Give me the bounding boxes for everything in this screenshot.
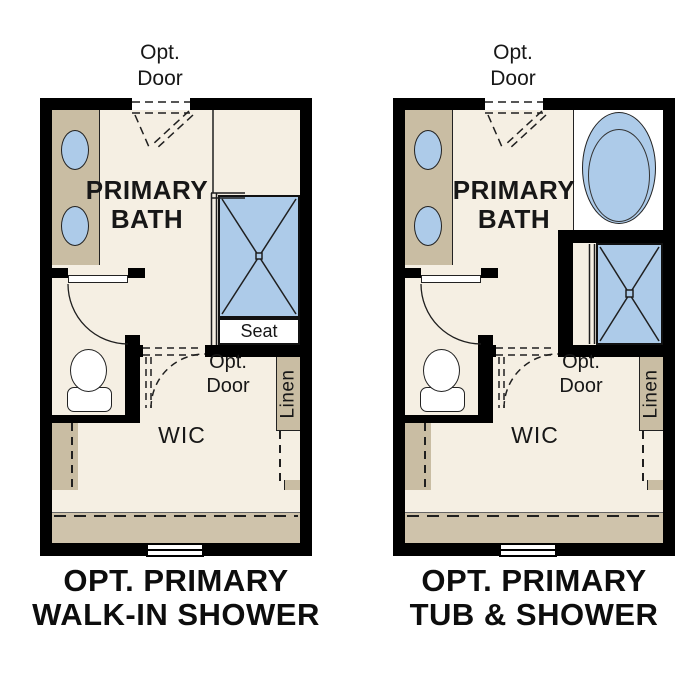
plan-tub-shower-option: Linen bbox=[393, 98, 675, 556]
window bbox=[499, 543, 557, 557]
closet-shelf bbox=[284, 480, 300, 490]
toilet-room-wall bbox=[40, 415, 140, 423]
wall bbox=[190, 98, 312, 110]
shower-pan bbox=[596, 243, 663, 345]
bathtub-basin bbox=[588, 129, 650, 222]
window bbox=[146, 543, 204, 557]
walk-in-shower-pan bbox=[218, 195, 300, 318]
shower-side-wall bbox=[558, 230, 573, 357]
wall bbox=[393, 98, 485, 110]
wall bbox=[40, 98, 52, 556]
room-label: PRIMARY BATH bbox=[72, 176, 222, 234]
wall bbox=[663, 98, 675, 556]
plan-caption: OPT. PRIMARY WALK-IN SHOWER bbox=[6, 564, 346, 632]
wall bbox=[393, 98, 405, 556]
toilet-bowl bbox=[70, 349, 107, 392]
toilet-room-wall bbox=[393, 415, 493, 423]
linen-closet: Linen bbox=[276, 357, 300, 431]
linen-closet: Linen bbox=[639, 357, 663, 431]
plan-caption: OPT. PRIMARY TUB & SHOWER bbox=[364, 564, 687, 632]
window-pane-line bbox=[148, 549, 202, 551]
sink-basin bbox=[61, 130, 89, 170]
toilet-bowl bbox=[423, 349, 460, 392]
sink-basin bbox=[414, 206, 442, 246]
sink-basin bbox=[414, 130, 442, 170]
closet-shelf bbox=[52, 423, 78, 490]
plan-walk-in-shower-option: Seat Linen bbox=[40, 98, 312, 556]
closet-rod bbox=[71, 423, 73, 490]
top-door-label: Opt. Door bbox=[463, 40, 563, 92]
floorplan-diagram: Seat Linen bbox=[0, 0, 687, 687]
linen-label: Linen bbox=[278, 369, 300, 418]
closet-shelf bbox=[647, 480, 663, 490]
seat-label: Seat bbox=[240, 321, 277, 342]
wic-wall bbox=[125, 345, 143, 357]
closet-rod bbox=[642, 431, 644, 487]
wic-door-label: Opt. Door bbox=[543, 350, 619, 398]
top-door-label: Opt. Door bbox=[110, 40, 210, 92]
toilet-room-wall bbox=[481, 268, 498, 278]
shower-seat: Seat bbox=[218, 318, 300, 345]
toilet-room-wall bbox=[128, 268, 145, 278]
wall bbox=[300, 98, 312, 556]
wall bbox=[543, 98, 675, 110]
toilet-room-wall bbox=[52, 268, 68, 278]
wic-label: WIC bbox=[493, 422, 577, 449]
wic-door-label: Opt. Door bbox=[190, 350, 266, 398]
closet-rod bbox=[424, 423, 426, 490]
closet-shelf bbox=[405, 423, 431, 490]
soffit-dashed-line bbox=[407, 515, 661, 517]
room-label: PRIMARY BATH bbox=[439, 176, 589, 234]
toilet-room-door-leaf bbox=[68, 275, 128, 283]
wall bbox=[40, 98, 132, 110]
closet-rod bbox=[279, 431, 281, 487]
linen-label: Linen bbox=[641, 369, 663, 418]
toilet-room-wall bbox=[405, 268, 421, 278]
window-pane-line bbox=[501, 549, 555, 551]
toilet-room-door-leaf bbox=[421, 275, 481, 283]
wic-label: WIC bbox=[140, 422, 224, 449]
soffit-dashed-line bbox=[54, 515, 298, 517]
wic-wall bbox=[478, 345, 496, 357]
